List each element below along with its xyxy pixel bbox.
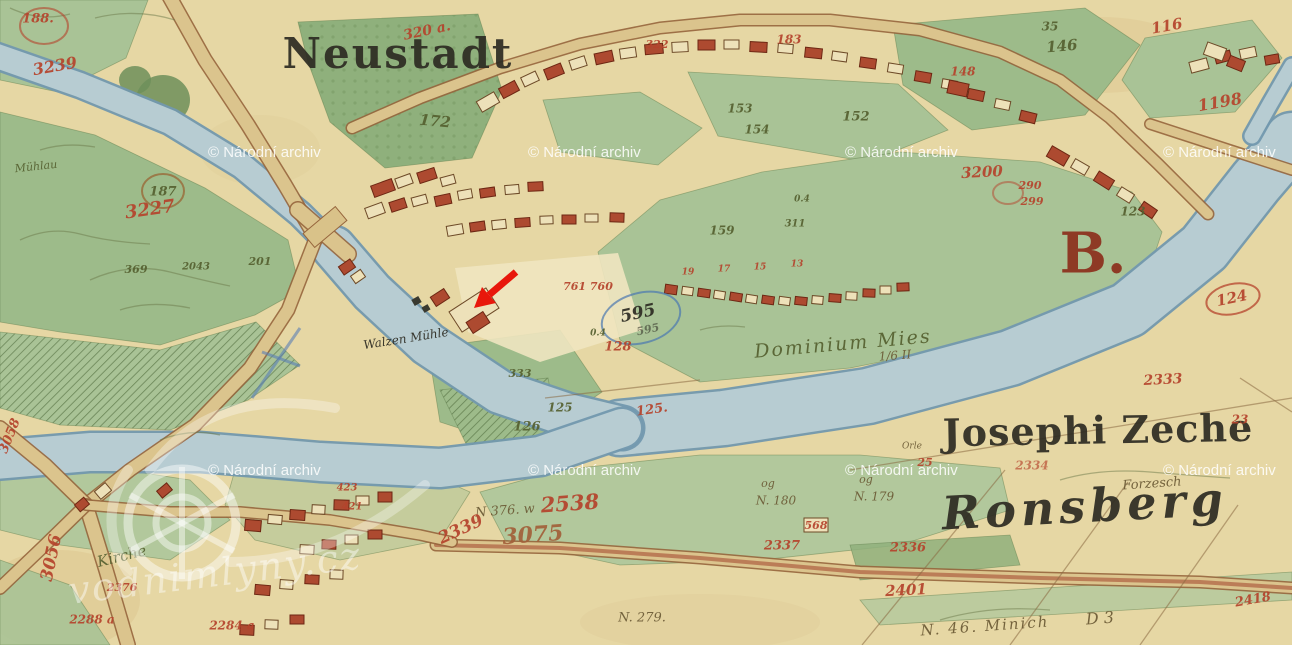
building <box>829 294 842 303</box>
building <box>724 40 739 49</box>
map-label: 13 <box>791 260 804 270</box>
building <box>479 187 495 198</box>
building <box>681 286 693 295</box>
map-label: 299 <box>1020 195 1044 208</box>
archive-watermark-text: © Národní archiv <box>208 462 321 479</box>
map-label: 2336 <box>889 541 926 556</box>
map-label: B. <box>1060 221 1127 287</box>
archive-watermark-text: © Národní archiv <box>845 144 958 161</box>
building <box>664 284 677 295</box>
building <box>698 288 711 298</box>
map-label: 17 <box>718 265 731 275</box>
archive-watermark-text: © Národní archiv <box>1163 144 1276 161</box>
map-label: Orle <box>902 442 922 452</box>
archive-watermark-text: © Národní archiv <box>845 462 958 479</box>
map-label: 35 <box>1042 20 1059 34</box>
map-label: 333 <box>509 367 532 380</box>
archive-watermark-text: © Národní archiv <box>528 462 641 479</box>
map-label: 3200 <box>961 162 1004 182</box>
map-label: 188. <box>22 12 54 27</box>
building <box>610 213 624 222</box>
map-label: 187 <box>149 185 176 200</box>
building <box>290 615 304 624</box>
building <box>897 283 909 291</box>
map-label: 761 760 <box>563 280 613 293</box>
map-label: 2043 <box>181 262 210 273</box>
building <box>619 47 636 59</box>
map-label: D 3 <box>1084 608 1114 629</box>
map-label: 2337 <box>763 539 800 554</box>
map-label: 201 <box>248 255 272 268</box>
map-label: 15 <box>754 263 767 273</box>
building <box>562 215 576 224</box>
map-label: Josephi Zeche <box>939 405 1253 455</box>
building <box>887 63 903 74</box>
map-label: 19 <box>682 268 695 278</box>
building <box>698 40 715 50</box>
map-label: 2401 <box>884 580 928 600</box>
map-label: 123 <box>1120 205 1145 219</box>
building <box>778 296 790 305</box>
building <box>672 42 689 53</box>
map-label: 2333 <box>1142 371 1183 389</box>
map-label: 2288 a <box>68 613 114 627</box>
map-label: 159 <box>709 224 735 238</box>
map-label: 369 <box>125 263 148 276</box>
map-label: 2538 <box>539 488 600 517</box>
map-label: 125 <box>547 401 572 415</box>
building <box>368 530 382 539</box>
building <box>805 47 823 59</box>
map-label: 172 <box>419 111 452 132</box>
building <box>745 294 757 304</box>
archive-watermark-text: © Národní archiv <box>208 144 321 161</box>
map-label: N. 180 <box>755 494 797 508</box>
map-label: 311 <box>785 219 806 230</box>
building <box>880 286 891 294</box>
map-label: N. 179 <box>853 490 895 504</box>
building <box>914 71 931 84</box>
map-label: 3075 <box>501 520 564 550</box>
building <box>795 296 808 305</box>
map-viewport: NeustadtJosephi ZecheRonsbergB.Dominium … <box>0 0 1292 645</box>
map-label: 2284 a <box>208 619 254 633</box>
map-label: 152 <box>842 110 869 125</box>
map-label: 2334 <box>1014 459 1048 473</box>
building <box>812 296 824 305</box>
building <box>713 290 725 300</box>
building <box>846 292 857 301</box>
archive-watermark-text: © Národní archiv <box>1163 462 1276 479</box>
map-label: 322 <box>646 38 669 51</box>
building <box>290 509 306 520</box>
map-label: 146 <box>1046 36 1079 57</box>
map-label: Neustadt <box>283 29 514 78</box>
building <box>245 519 262 531</box>
building <box>1264 54 1279 65</box>
map-label: 126 <box>513 420 540 435</box>
building <box>378 492 392 502</box>
map-label: 1/6 II <box>878 347 912 363</box>
map-label: 421 <box>342 502 363 513</box>
map-label: og <box>761 477 775 490</box>
building <box>469 221 485 232</box>
map-label: 290 <box>1018 179 1042 192</box>
building <box>528 182 543 192</box>
map-label: 23 <box>1231 413 1249 427</box>
building <box>729 292 742 302</box>
building <box>750 42 768 53</box>
archive-watermark-text: © Národní archiv <box>528 144 641 161</box>
building <box>762 295 775 305</box>
map-label: 0.4 <box>794 195 810 205</box>
building <box>505 184 520 194</box>
map-label: 568 <box>805 519 828 532</box>
building <box>268 514 283 524</box>
map-label: 154 <box>744 123 769 137</box>
building <box>585 214 598 222</box>
building <box>457 189 472 200</box>
historical-cadastral-map: NeustadtJosephi ZecheRonsbergB.Dominium … <box>0 0 1292 645</box>
map-label: 148 <box>950 65 976 79</box>
map-label: 0.4 <box>590 329 606 339</box>
building <box>863 289 875 297</box>
building <box>515 217 531 227</box>
map-label: 153 <box>727 102 752 116</box>
map-label: 423 <box>337 483 358 494</box>
map-label: 183 <box>776 33 801 47</box>
building <box>312 505 325 515</box>
building <box>492 219 507 229</box>
building <box>446 224 463 237</box>
building <box>831 51 847 62</box>
map-label: 128 <box>604 340 631 355</box>
building <box>265 620 278 629</box>
map-label: N. 279. <box>617 611 666 626</box>
building <box>540 216 553 224</box>
building <box>859 57 876 69</box>
